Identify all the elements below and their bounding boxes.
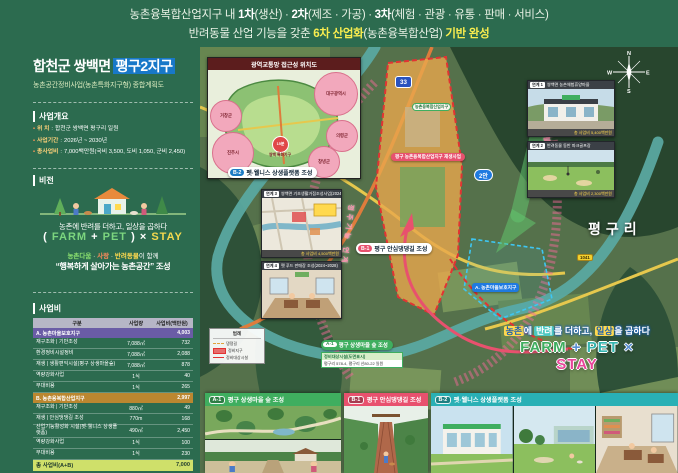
link3-caption: 총 사업비 4,500백만원 <box>262 250 341 257</box>
overview-item-period: •사업기간:2026년 ~ 2030년 <box>33 138 193 146</box>
a-zone-pill: A. 농촌마을보호지구 <box>472 283 519 292</box>
farm-pet-stay-logo: FARM + PET × STAY <box>498 339 656 373</box>
svg-text:N: N <box>627 51 631 57</box>
link-tag: 연계 4 <box>264 263 279 269</box>
project-pill: 평구 농촌융복합산업지구 재생사업 <box>391 153 465 161</box>
vision-illustration <box>40 186 186 218</box>
a1-badge: A-1 <box>323 342 337 347</box>
callout-text: 평구리 578-4, 평구리 산80-22 일원 <box>322 360 402 367</box>
budget-heading: 사업비 <box>33 303 61 314</box>
map-legend: 범례 댕댕길 정비지구 정비대상시설 <box>209 328 265 364</box>
vision-formula: ( FARM + PET ) × STAY <box>33 231 193 243</box>
page-title: 합천군 쌍백면평구2지구 농촌공간정비사업(농촌특화지구형) 종합계획도 <box>33 56 195 90</box>
route-1041-badge: 1041 <box>577 254 593 261</box>
budget-row: 재구조화 | 기반조성7,088㎡732 <box>33 338 193 349</box>
overview-item-budget: •총사업비:7,000백만원(국비 3,500, 도비 1,050, 군비 2,… <box>33 149 193 157</box>
budget-section-a: A. 농촌마을보호지구4,003 <box>33 328 193 338</box>
svg-text:E: E <box>646 71 650 77</box>
traffic-city-circle: 거창군 <box>210 100 242 132</box>
traffic-city-circle: 대구광역시 <box>314 72 358 116</box>
page-subtitle: 농촌공간정비사업(농촌특화지구형) 종합계획도 <box>33 80 195 90</box>
budget-section-b: B. 농촌융복합산업지구2,997 <box>33 393 193 403</box>
park-aerial-render <box>205 406 341 439</box>
bottom-tagline: 농촌에 반려를 더하고, 일상을 곱하다 <box>498 324 656 337</box>
overview-item-location: •위 치:합천군 쌍백면 평구리 일원 <box>33 126 193 134</box>
b2-project-pill: B-2 펫·웰니스 상생플랫폼 조성 <box>228 167 317 178</box>
budget-row: 환경정비시설정비7,088㎡2,088 <box>33 349 193 360</box>
link1-caption: 총 사업비 5,400백만원 <box>528 129 614 136</box>
vision-heading: 비전 <box>33 175 54 186</box>
link-box-2: 연계 2반려동물 동반 파크골프장 총 사업비 2,300백만원 <box>527 141 615 198</box>
link-tag: 연계 2 <box>530 143 545 149</box>
link2-caption: 총 사업비 2,300백만원 <box>528 190 614 197</box>
budget-row: 재생 | 생활편익시설(평구 상생마을숲)7,088㎡878 <box>33 360 193 371</box>
budget-table: 구분사업량사업비(백만원) A. 농촌마을보호지구4,003 재구조화 | 기반… <box>33 318 193 471</box>
callout-title: 정비대상시설(도면표시) <box>322 353 402 360</box>
link-box-4: 연계 4펫 푸드 판매장 조성(2024~2028) <box>261 261 342 319</box>
legend-item: 댕댕길 <box>213 341 261 347</box>
link-tag: 연계 1 <box>530 82 545 88</box>
link-tag: 연계 3 <box>264 191 279 197</box>
budget-total-row: 총 사업비(A+B)7,000 <box>33 460 193 471</box>
traffic-inset-title: 광역교통망 접근성 위치도 <box>208 58 360 70</box>
platform-lawn-render <box>514 406 596 473</box>
alternative-2-badge: 2안 <box>474 169 493 181</box>
svg-text:W: W <box>607 71 613 77</box>
b2-badge: B-2 <box>230 169 244 176</box>
panel-a1: A-1평구 상생마을 숲 조성 <box>205 393 341 473</box>
legend-item: 정비지구 <box>213 348 261 354</box>
park-walkway-render <box>205 440 341 473</box>
traffic-access-inset-map: 광역교통망 접근성 위치도 거창군 대구광역시 진주시 의령군 창녕군 15분 … <box>207 57 361 179</box>
budget-row: 역량강화사업1식100 <box>33 438 193 449</box>
banner-line-1: 농촌융복합산업지구 내 1차(생산) · 2차(제조 · 가공) · 3차(체험… <box>0 6 678 22</box>
village-name-label: 평구리 <box>588 219 642 239</box>
top-banner: 농촌융복합산업지구 내 1차(생산) · 2차(제조 · 가공) · 3차(체험… <box>0 0 678 47</box>
panel-b2: B-2펫·웰니스 상생플랫폼 조성 <box>431 393 678 473</box>
budget-table-header: 구분사업량사업비(백만원) <box>33 318 193 328</box>
budget-row: 역량강화사업1식40 <box>33 371 193 382</box>
zone-label: 농촌융복합산업지구 <box>412 103 451 111</box>
a1-callout: A-1평구 상생마을 숲 조성 정비대상시설(도면표시) 평구리 578-4, … <box>321 332 403 368</box>
panel-a1-badge: A-1 <box>209 396 225 404</box>
overview-section: 사업개요 •위 치:합천군 쌍백면 평구리 일원 •사업기간:2026년 ~ 2… <box>33 111 193 157</box>
panel-b1-badge: B-1 <box>348 396 364 404</box>
panel-b2-badge: B-2 <box>435 396 451 404</box>
budget-row: 부대비용1식265 <box>33 382 193 393</box>
b1-badge: B-1 <box>358 245 372 252</box>
divider <box>33 168 193 169</box>
route-33-shield: 33 <box>395 76 412 88</box>
vision-keywords: 농촌다움 · 사랑 · 반려동물이 함께 <box>33 250 193 260</box>
traffic-center-marker: 15분 <box>272 136 289 153</box>
banner-line-2: 반려동물 산업 기능을 갖춘 6차 산업화(농촌융복합산업) 기반 완성 <box>0 25 678 41</box>
budget-row: 재구조화 | 기반조성880㎡49 <box>33 403 193 414</box>
divider <box>33 102 193 103</box>
legend-item: 정비대상시설 <box>213 355 261 361</box>
b1-project-pill: B-1 평구 안심댕댕길 조성 <box>356 243 432 254</box>
traffic-center-label: 쌍백 특화지구 <box>263 153 297 158</box>
legend-title: 범례 <box>213 331 261 339</box>
overview-heading: 사업개요 <box>33 111 193 122</box>
panel-b1: B-1평구 안심댕댕길 조성 <box>344 393 428 473</box>
budget-row: 산업기능활성화 시설(펫·웰니스 상생플랫폼)490㎡2,450 <box>33 425 193 438</box>
divider <box>33 292 193 293</box>
link-box-1: 연계 1쌍백면 농촌체험휴양마을 총 사업비 5,400백만원 <box>527 80 615 137</box>
zone-name-highlight: 평구2지구 <box>113 58 176 74</box>
svg-text:S: S <box>627 89 631 94</box>
dog-path-render <box>344 406 428 473</box>
link2-parkgolf-photo <box>528 150 614 190</box>
platform-building-render <box>431 406 513 473</box>
link1-building-photo <box>528 89 614 129</box>
link-box-3: 연계 3쌍백면 기초생활거점조성사업(2024~2030) 총 사업비 4,50… <box>261 189 342 258</box>
poster: 농촌융복합산업지구 내 1차(생산) · 2차(제조 · 가공) · 3차(체험… <box>0 0 678 473</box>
budget-row: 부대비용1식230 <box>33 449 193 460</box>
vision-slogan: “행복하게 살아가는 농촌공간” 조성 <box>33 260 193 272</box>
link3-map-thumbnail <box>262 198 341 250</box>
platform-interior-render <box>596 406 678 473</box>
link4-interior-photo <box>262 270 341 318</box>
